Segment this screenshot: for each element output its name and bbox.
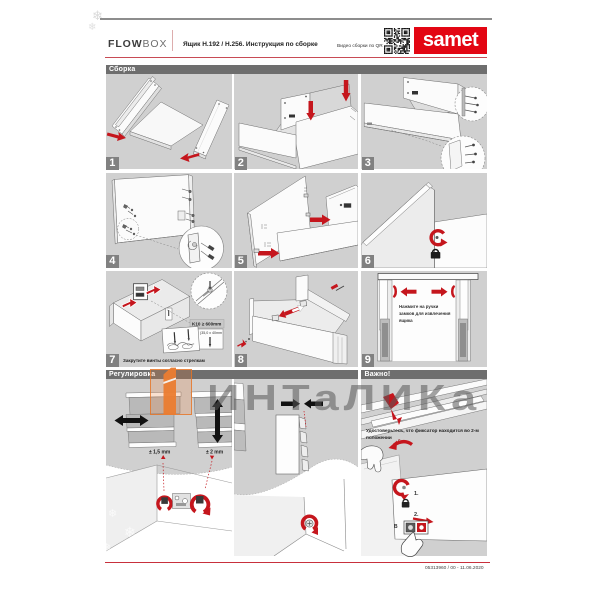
svg-text:K10 ≥ 600mm: K10 ≥ 600mm [192, 321, 221, 326]
svg-text:± 2 mm: ± 2 mm [206, 450, 224, 456]
svg-text:❄: ❄ [108, 508, 117, 520]
svg-text:Удостоверьтесь, что фиксатор н: Удостоверьтесь, что фиксатор находится в… [366, 427, 479, 433]
svg-text:1.: 1. [414, 491, 419, 497]
svg-text:положении: положении [366, 435, 392, 440]
svg-text:B: B [394, 524, 398, 530]
svg-text:± 1,5 mm: ± 1,5 mm [149, 450, 171, 456]
svg-text:Нажмите на ручки: Нажмите на ручки [399, 304, 439, 309]
svg-text:❄: ❄ [124, 524, 136, 540]
svg-text:2.: 2. [414, 512, 419, 518]
svg-text:(35,0 x 40mm: (35,0 x 40mm [200, 331, 222, 335]
svg-text:замков для извлечения: замков для извлечения [399, 311, 451, 316]
svg-text:❄: ❄ [106, 542, 111, 554]
svg-text:ящика: ящика [399, 318, 413, 323]
